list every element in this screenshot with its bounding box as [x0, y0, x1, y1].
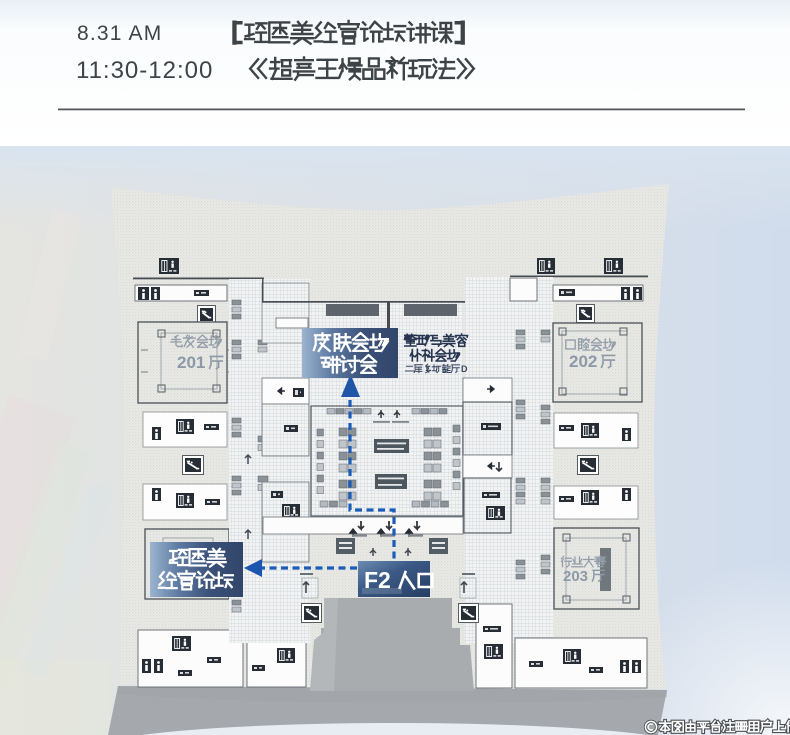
- svg-text:203: 203: [563, 568, 588, 585]
- svg-text:D: D: [461, 364, 468, 374]
- svg-text:201: 201: [177, 353, 205, 372]
- svg-text:11:30-12:00: 11:30-12:00: [76, 57, 213, 84]
- svg-text:202: 202: [569, 352, 597, 371]
- svg-text:8.31 AM: 8.31 AM: [77, 22, 162, 45]
- svg-text:F2: F2: [364, 567, 391, 593]
